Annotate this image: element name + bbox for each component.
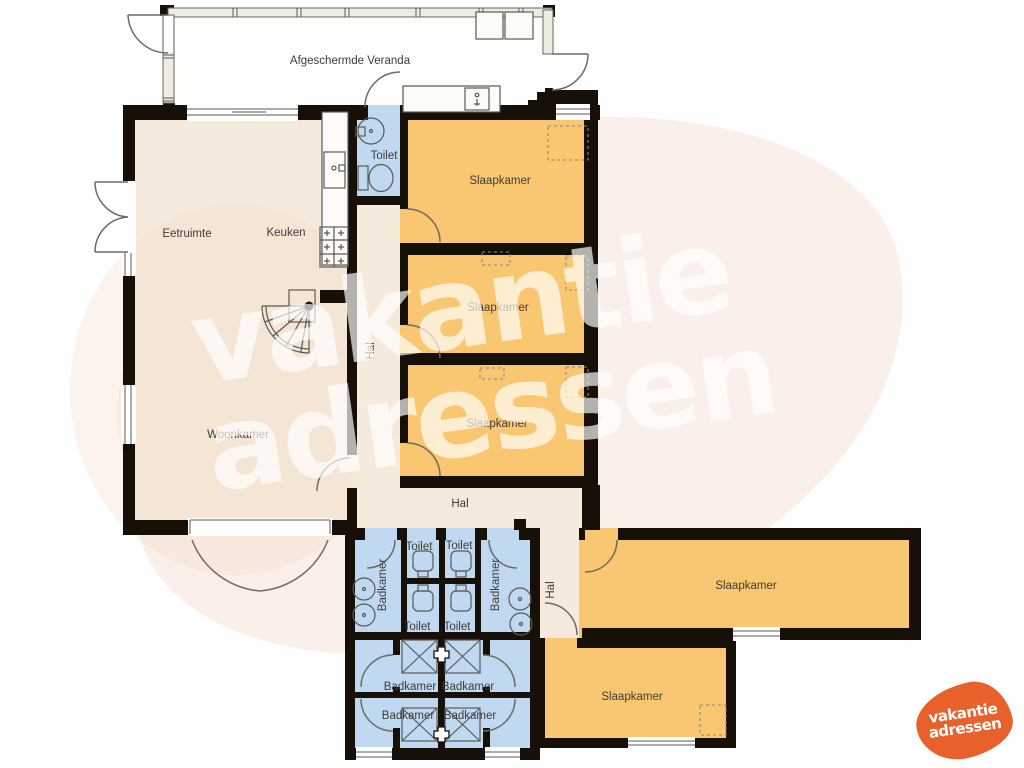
veranda-counter	[403, 86, 500, 112]
logo-text: vakantie adressen	[911, 678, 1016, 765]
room-label-toilet-1: Toilet	[406, 541, 433, 553]
hall-vertical	[352, 202, 403, 488]
room-label-toilet-4: Toilet	[444, 621, 471, 633]
room-label-eetruimte: Eetruimte	[162, 228, 211, 240]
room-label-toilet-2: Toilet	[446, 540, 473, 552]
room-label-badkamer-br: Badkamer	[444, 710, 496, 722]
room-label-badkamer-tl: Badkamer	[384, 681, 436, 693]
room-label-hal-horizontal: Hal	[451, 498, 468, 510]
logo-vakantieadressen: vakantie adressen	[916, 684, 1012, 758]
room-label-toilet-3: Toilet	[404, 621, 431, 633]
room-label-slaapkamer-3: Slaapkamer	[466, 418, 527, 430]
room-label-badkamer-tr: Badkamer	[442, 681, 494, 693]
room-label-hal-small: Hal	[545, 581, 557, 598]
room-label-badkamer-bl: Badkamer	[382, 710, 434, 722]
room-label-woonkamer: Woonkamer	[207, 429, 269, 441]
room-label-hal-vertical: Hal	[365, 342, 377, 359]
room-label-slaapkamer-bottom: Slaapkamer	[601, 691, 662, 703]
floorplan-drawing	[0, 0, 1024, 768]
veranda-cabinet-2	[505, 12, 533, 39]
room-label-slaapkamer-wide: Slaapkamer	[715, 580, 776, 592]
room-label-slaapkamer-2: Slaapkamer	[467, 302, 528, 314]
veranda-right-door	[552, 54, 588, 90]
room-label-badkamer-right: Badkamer	[490, 559, 502, 611]
hall-horizontal	[352, 480, 592, 535]
room-label-slaapkamer-1: Slaapkamer	[469, 175, 530, 187]
veranda-left-door	[128, 15, 168, 53]
room-label-badkamer-left: Badkamer	[377, 559, 389, 611]
room-label-keuken: Keuken	[266, 227, 305, 239]
veranda-cabinet-1	[476, 12, 503, 39]
floorplan-page: Afgeschermde Veranda Eetruimte Keuken To…	[0, 0, 1024, 768]
room-label-veranda: Afgeschermde Veranda	[290, 55, 410, 67]
room-label-toilet-top: Toilet	[371, 150, 398, 162]
room-fills	[70, 10, 921, 760]
